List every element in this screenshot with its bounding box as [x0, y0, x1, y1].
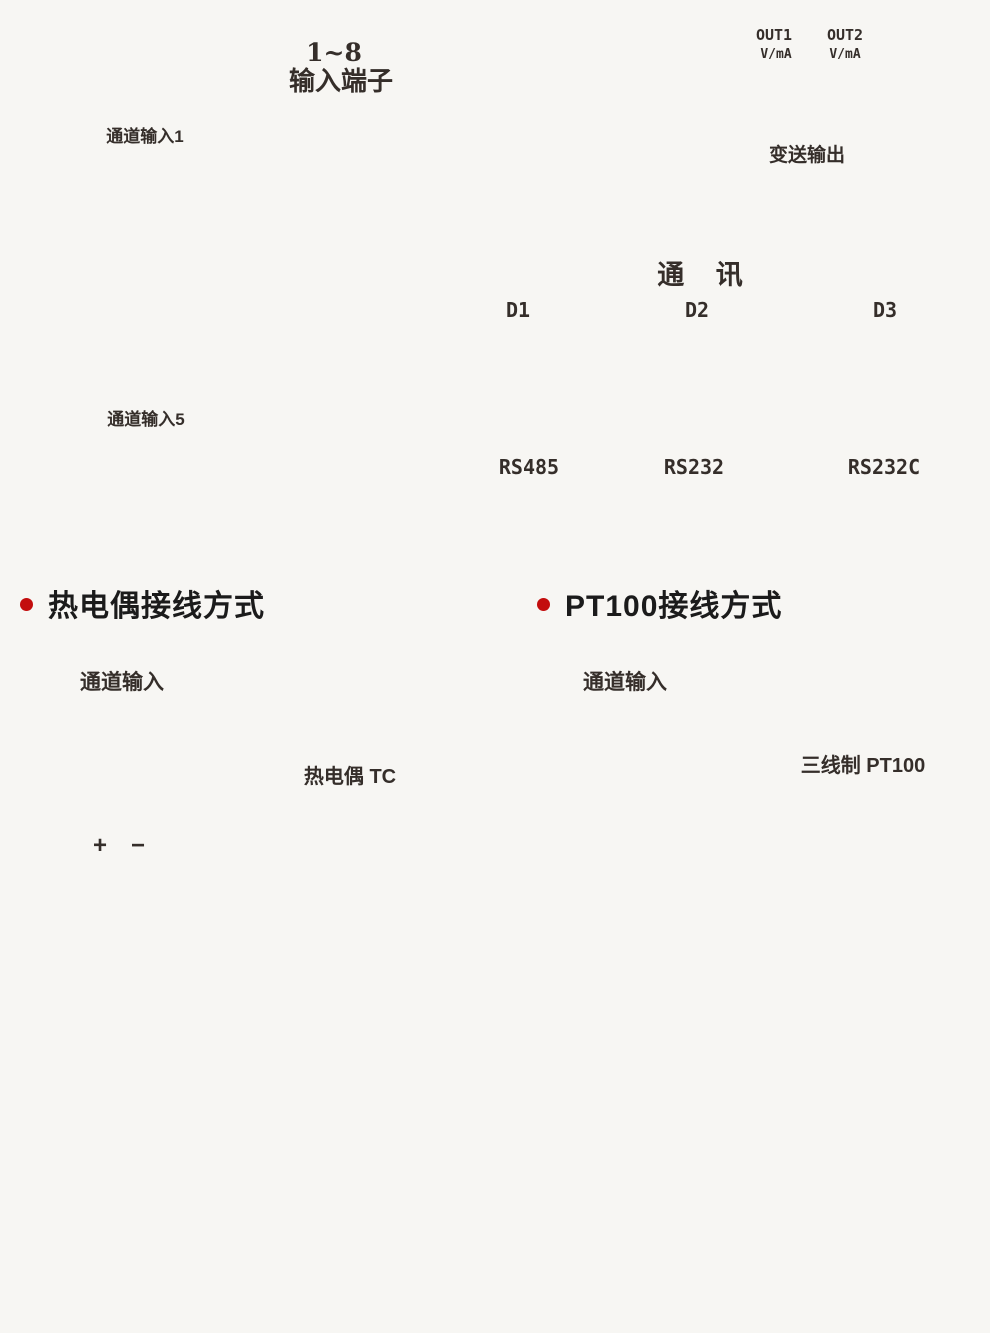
input-range-label: 1~8: [306, 38, 362, 67]
comm-col-d3: D3: [873, 298, 897, 322]
tc-channel-title: 通道输入: [80, 670, 164, 694]
out2-vma-label: V/mA: [829, 47, 860, 62]
red-bullet-icon: [20, 598, 33, 611]
section-title-text: 热电偶接线方式: [48, 581, 265, 625]
tc-wire-plus-label: +: [93, 832, 107, 859]
diagram-canvas: 1~8 输入端子 OUT1 OUT2 V/mA V/mA 变送输出 通 讯 D1…: [0, 0, 990, 1333]
rs232-caption: RS232: [664, 455, 724, 479]
red-bullet-icon: [537, 598, 550, 611]
out1-vma-label: V/mA: [760, 47, 791, 62]
section-title-pt100: PT100接线方式: [537, 581, 782, 625]
out1-label: OUT1: [756, 26, 792, 44]
channel1-title: 通道输入1: [106, 126, 183, 146]
pt-sensor-label: 三线制 PT100: [801, 753, 925, 777]
channel5-title: 通道输入5: [107, 409, 184, 429]
tc-sensor-label: 热电偶 TC: [304, 764, 396, 788]
section-title-thermocouple: 热电偶接线方式: [20, 581, 265, 625]
section-title-text: PT100接线方式: [565, 581, 782, 625]
input-terminals-label: 输入端子: [289, 66, 393, 96]
wiring-manual-page: 1~8 输入端子 OUT1 OUT2 V/mA V/mA 变送输出 通 讯 D1…: [0, 0, 990, 1333]
rs485-caption: RS485: [499, 455, 559, 479]
comm-table-title: 通 讯: [657, 260, 755, 290]
transmit-output-caption: 变送输出: [769, 143, 845, 166]
comm-col-d1: D1: [506, 298, 530, 322]
comm-col-d2: D2: [685, 298, 709, 322]
tc-wire-minus-label: −: [131, 832, 145, 859]
out2-label: OUT2: [827, 26, 863, 44]
rs232c-caption: RS232C: [848, 455, 920, 479]
pt-channel-title: 通道输入: [583, 670, 667, 694]
